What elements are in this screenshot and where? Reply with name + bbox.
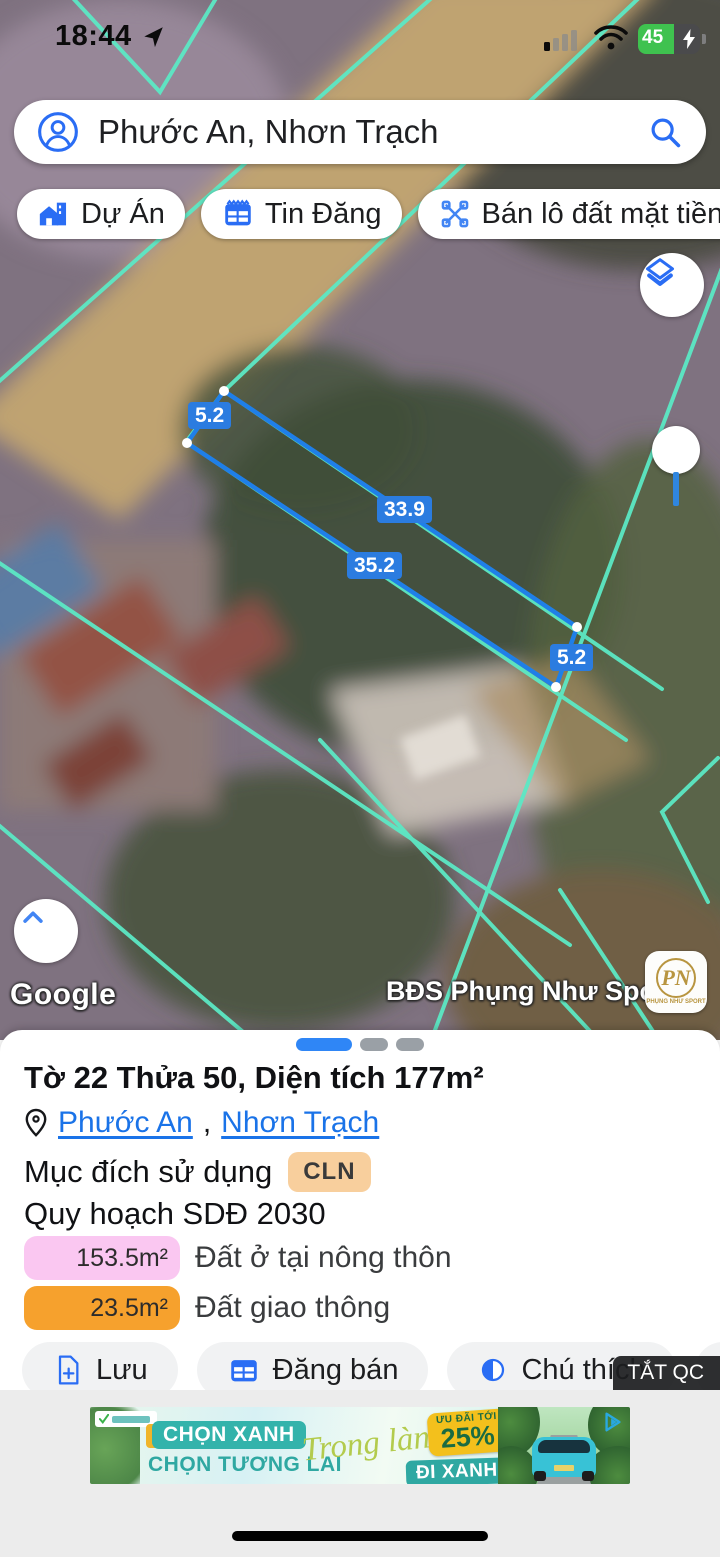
measurement-label-bottom: 35.2 (347, 552, 402, 579)
chip-ban-lo-dat[interactable]: Bán lô đất mặt tiền nhựa (418, 189, 720, 239)
ward-link[interactable]: Phước An (58, 1106, 193, 1140)
location-pin-icon (24, 1108, 48, 1138)
planning-label: Quy hoạch SDĐ 2030 (24, 1196, 326, 1232)
post-sale-table-icon (227, 1353, 261, 1387)
ad-banner[interactable]: CHỌN XANH CHỌN TƯƠNG LAI Trong lành ƯU Đ… (90, 1407, 630, 1484)
save-file-plus-icon (52, 1354, 84, 1386)
page-dot[interactable] (396, 1038, 424, 1051)
battery-icon: 45 (638, 24, 700, 54)
house-project-icon (37, 197, 71, 231)
measurement-label-right: 5.2 (550, 644, 593, 671)
google-logo: Google (10, 978, 116, 1012)
wifi-icon (592, 22, 630, 52)
clock: 18:44 (55, 20, 132, 53)
parcel-title: Tờ 22 Thửa 50, Diện tích 177m² (24, 1060, 484, 1096)
dismiss-ad-button[interactable]: TẮT QC (613, 1356, 720, 1390)
chip-du-an[interactable]: Dự Án (17, 189, 185, 239)
purpose-badge: CLN (288, 1152, 370, 1192)
map-layers-button[interactable] (640, 253, 704, 317)
measurement-label-top: 33.9 (377, 496, 432, 523)
chevron-up-icon (14, 899, 52, 937)
page-dot-active[interactable] (296, 1038, 352, 1051)
chip-tin-dang[interactable]: Tin Đăng (201, 189, 402, 239)
zone-label: Đất giao thông (195, 1291, 390, 1325)
app-screen: 5.2 33.9 35.2 5.2 Google BĐS Phụng Như S… (0, 0, 720, 1557)
page-indicator[interactable] (0, 1038, 720, 1051)
location-separator: , (203, 1106, 211, 1140)
cellular-signal-icon (544, 30, 577, 51)
search-icon[interactable] (646, 113, 684, 151)
scissors-icon (438, 197, 472, 231)
ad-promo-big: 25% (436, 1422, 498, 1453)
ad-play-icon[interactable] (602, 1411, 624, 1433)
zone-area-badge: 23.5m² (24, 1286, 180, 1330)
zone-row-residential: 153.5m² Đất ở tại nông thôn (24, 1236, 452, 1280)
zone-row-traffic: 23.5m² Đất giao thông (24, 1286, 390, 1330)
action-label: Đăng bán (273, 1354, 399, 1387)
purpose-row: Mục đích sử dụng CLN (24, 1152, 371, 1192)
ad-footer: CHỌN XANH CHỌN TƯƠNG LAI Trong lành ƯU Đ… (0, 1390, 720, 1557)
battery-tip (702, 34, 706, 44)
page-dot[interactable] (360, 1038, 388, 1051)
home-indicator[interactable] (232, 1531, 488, 1541)
location-row: Phước An, Nhơn Trạch (24, 1106, 379, 1140)
zone-label: Đất ở tại nông thôn (195, 1241, 452, 1275)
purpose-label: Mục đích sử dụng (24, 1154, 272, 1190)
district-link[interactable]: Nhơn Trạch (221, 1106, 379, 1140)
ad-headline: CHỌN XANH (152, 1421, 306, 1449)
chip-label: Dự Án (81, 198, 165, 231)
search-bar[interactable]: Phước An, Nhơn Trạch (14, 100, 706, 164)
legend-contrast-icon (477, 1354, 509, 1386)
filter-chips: Dự Án Tin Đăng Bán lô đất mặt tiền nhựa (17, 189, 720, 239)
parcel-info-panel: Tờ 22 Thửa 50, Diện tích 177m² Phước An,… (0, 1030, 720, 1390)
ad-promo-badge: ƯU ĐÃI TỚI 25% (427, 1408, 509, 1456)
battery-percent: 45 (642, 27, 663, 49)
expand-panel-button[interactable] (14, 899, 78, 963)
brand-monogram: PN (656, 958, 696, 998)
map-slider-knob[interactable] (652, 426, 700, 474)
chip-label: Bán lô đất mặt tiền nhựa (482, 198, 720, 231)
measurement-label-left: 5.2 (188, 402, 231, 429)
zone-area-badge: 153.5m² (24, 1236, 180, 1280)
search-input[interactable]: Phước An, Nhơn Trạch (98, 113, 646, 151)
charging-bolt-icon (682, 29, 696, 49)
status-bar: 18:44 45 (0, 18, 720, 58)
brand-logo: PN PHỤNG NHƯ SPORT (645, 951, 707, 1013)
map-slider-track (673, 472, 679, 506)
action-label: Lưu (96, 1354, 148, 1387)
brand-watermark: BĐS Phụng Như Sport (386, 976, 676, 1007)
brand-logo-caption: PHỤNG NHƯ SPORT (646, 999, 705, 1006)
listing-table-icon (221, 197, 255, 231)
chip-label: Tin Đăng (265, 198, 382, 231)
layers-icon (640, 253, 680, 293)
location-arrow-icon (140, 24, 166, 50)
account-icon[interactable] (36, 110, 80, 154)
check-icon (99, 1414, 109, 1424)
ad-headline-text: CHỌN XANH (152, 1421, 306, 1449)
